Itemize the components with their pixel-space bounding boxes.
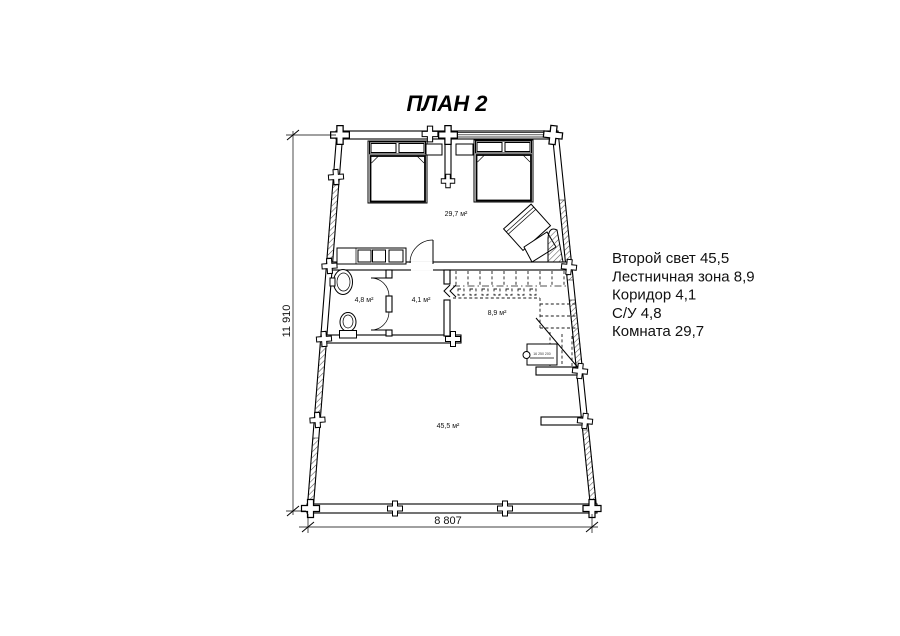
floor-plan-page: ПЛАН 2 <box>0 0 900 636</box>
wall-bathroom-partition-a <box>386 270 392 278</box>
door-corridor-to-bedroom <box>410 240 433 264</box>
dimension-width-label: 8 807 <box>434 515 462 527</box>
stair-direction-arrow <box>444 285 456 297</box>
door-bathroom-upper <box>371 278 389 296</box>
wall-bathroom-partition-b <box>386 296 392 312</box>
bed-pillow <box>371 144 396 153</box>
floor-plan-drawing: ПЛАН 2 <box>0 0 900 636</box>
bed-pillow <box>399 144 424 153</box>
label-stair-zone-area: 8,9 м² <box>488 310 507 317</box>
bed-mattress <box>477 155 532 201</box>
bed-mattress <box>371 156 426 202</box>
wall-corridor-right-a <box>444 270 450 284</box>
legend-line-corridor: Коридор 4,1 <box>612 287 696 304</box>
legend-line-room: Комната 29,7 <box>612 323 704 340</box>
bed-pillow <box>505 143 530 152</box>
bathroom-fixtures <box>330 270 357 339</box>
door-opening-corridor <box>411 261 433 270</box>
staircase: 16 250 200 <box>444 271 580 370</box>
stair-treads-upper-row <box>456 271 564 285</box>
wardrobe <box>337 248 406 264</box>
nightstand <box>456 144 473 155</box>
chair <box>548 229 563 262</box>
label-bedroom-area: 29,7 м² <box>445 211 468 218</box>
legend-line-second-light: Второй свет 45,5 <box>612 250 729 267</box>
radiator: 16 250 200 <box>523 344 557 365</box>
legend: Второй свет 45,5 Лестничная зона 8,9 Кор… <box>612 250 755 340</box>
legend-line-bathroom: С/У 4,8 <box>612 305 662 322</box>
door-bathroom-lower <box>371 312 389 330</box>
bed-right <box>474 140 533 202</box>
bed-pillow <box>477 143 502 152</box>
label-second-light-area: 45,5 м² <box>437 423 460 430</box>
toilet <box>340 313 357 339</box>
dimension-height-label: 11 910 <box>281 305 293 338</box>
sink <box>330 270 353 295</box>
stair-baluster-row <box>458 289 536 295</box>
desk-and-chair <box>504 204 563 262</box>
nightstand <box>426 144 442 155</box>
legend-line-stair-zone: Лестничная зона 8,9 <box>612 268 755 285</box>
wall-corridor-right-b <box>444 300 450 336</box>
label-corridor-area: 4,1 м² <box>412 297 431 304</box>
dimension-horizontal: 8 807 <box>299 514 598 533</box>
stair-note: 16 250 200 <box>533 352 551 356</box>
wall-bathroom-partition-c <box>386 330 392 336</box>
label-bathroom-area: 4,8 м² <box>355 297 374 304</box>
page-title: ПЛАН 2 <box>406 91 488 116</box>
wall-bottom <box>307 504 597 513</box>
bed-left <box>368 141 427 203</box>
room-area-labels: 29,7 м² 4,8 м² 4,1 м² 8,9 м² 45,5 м² <box>355 211 507 430</box>
